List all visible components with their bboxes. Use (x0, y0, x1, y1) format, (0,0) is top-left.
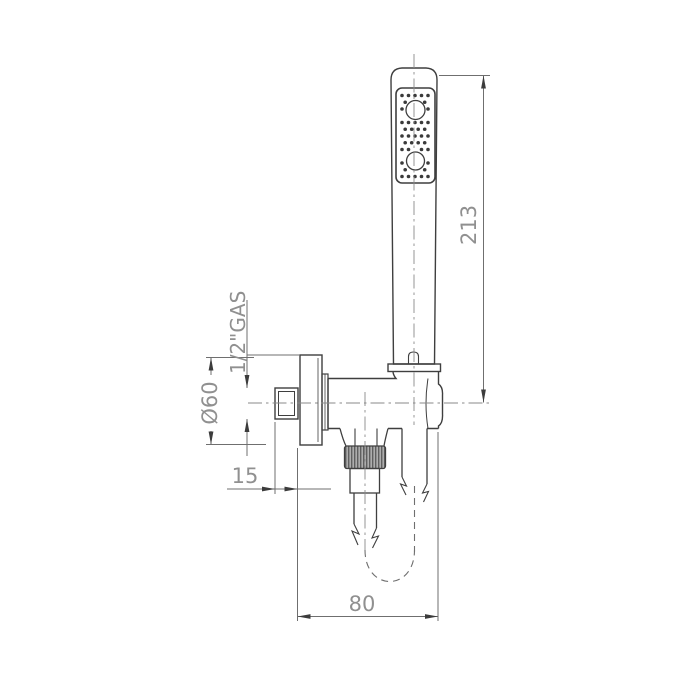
arrow-60-bottom (209, 432, 214, 445)
holder-body-contour (426, 379, 428, 429)
spray-dot (407, 134, 411, 138)
spray-dot (423, 127, 427, 131)
wall-flange (300, 355, 322, 445)
arrow-15-left (262, 487, 275, 492)
faceplate-screw-top (406, 101, 425, 120)
spray-dot (416, 127, 420, 131)
nut-funnel (340, 429, 388, 447)
spray-dot (426, 134, 430, 138)
spray-dot (420, 175, 424, 179)
hose-right-stub (402, 429, 427, 485)
spray-dot (400, 161, 404, 165)
technical-drawing-page: 213 80 15 Ø60 1/2"GAS (0, 0, 700, 700)
spray-dot (407, 121, 411, 125)
spray-dot (403, 168, 407, 172)
spray-dot (400, 107, 404, 111)
spray-dot (400, 175, 404, 179)
handle-base-notch (409, 352, 419, 364)
spray-dot (426, 107, 430, 111)
spray-dot (423, 141, 427, 145)
spray-dot (403, 127, 407, 131)
spray-dot (426, 121, 430, 125)
spray-nozzle-dots (400, 94, 430, 179)
arrow-80-left (298, 614, 311, 619)
spray-dot (420, 148, 424, 152)
spray-dot (400, 148, 404, 152)
nut-funnel-pipe (355, 429, 377, 447)
spray-dot (403, 100, 407, 104)
arrow-80-right (425, 614, 438, 619)
spray-dot (400, 134, 404, 138)
spray-dot (420, 121, 424, 125)
centerlines (248, 54, 492, 550)
shower-set-technical-drawing: 213 80 15 Ø60 1/2"GAS (0, 0, 700, 700)
arrow-213-top (481, 76, 486, 89)
faceplate-screw-bottom (407, 152, 425, 170)
water-inlet-square-inner (279, 392, 295, 416)
spray-dot (403, 141, 407, 145)
spray-dot (423, 100, 427, 104)
spray-dot (407, 94, 411, 98)
dim-thread-label: 1/2"GAS (226, 291, 250, 374)
dim-213-label: 213 (457, 205, 481, 245)
spray-dot (426, 148, 430, 152)
spray-dot (407, 175, 411, 179)
spray-dot (410, 127, 414, 131)
dim-15-label: 15 (232, 464, 259, 488)
dim-60-label: Ø60 (198, 381, 222, 424)
holder-body-outline (328, 372, 443, 429)
dimension-arrowheads (209, 76, 486, 619)
spray-dot (400, 121, 404, 125)
spray-dot (416, 141, 420, 145)
spray-dot (400, 94, 404, 98)
spray-dot (426, 175, 430, 179)
arrow-15-right (285, 487, 298, 492)
dim-80-label: 80 (349, 592, 376, 616)
arrow-thread-down (245, 375, 250, 388)
spray-dot (420, 134, 424, 138)
arrow-60-top (209, 358, 214, 371)
hose-assembly (345, 429, 429, 549)
spray-dot (420, 94, 424, 98)
arrow-thread-up (245, 419, 250, 432)
spray-dot (410, 141, 414, 145)
arrow-213-bottom (481, 390, 486, 403)
spray-dot (426, 161, 430, 165)
wall-bracket (275, 355, 443, 446)
spray-dot (423, 168, 427, 172)
spray-dot (407, 148, 411, 152)
spray-dot (426, 94, 430, 98)
hose-loop-dashed (365, 550, 415, 582)
